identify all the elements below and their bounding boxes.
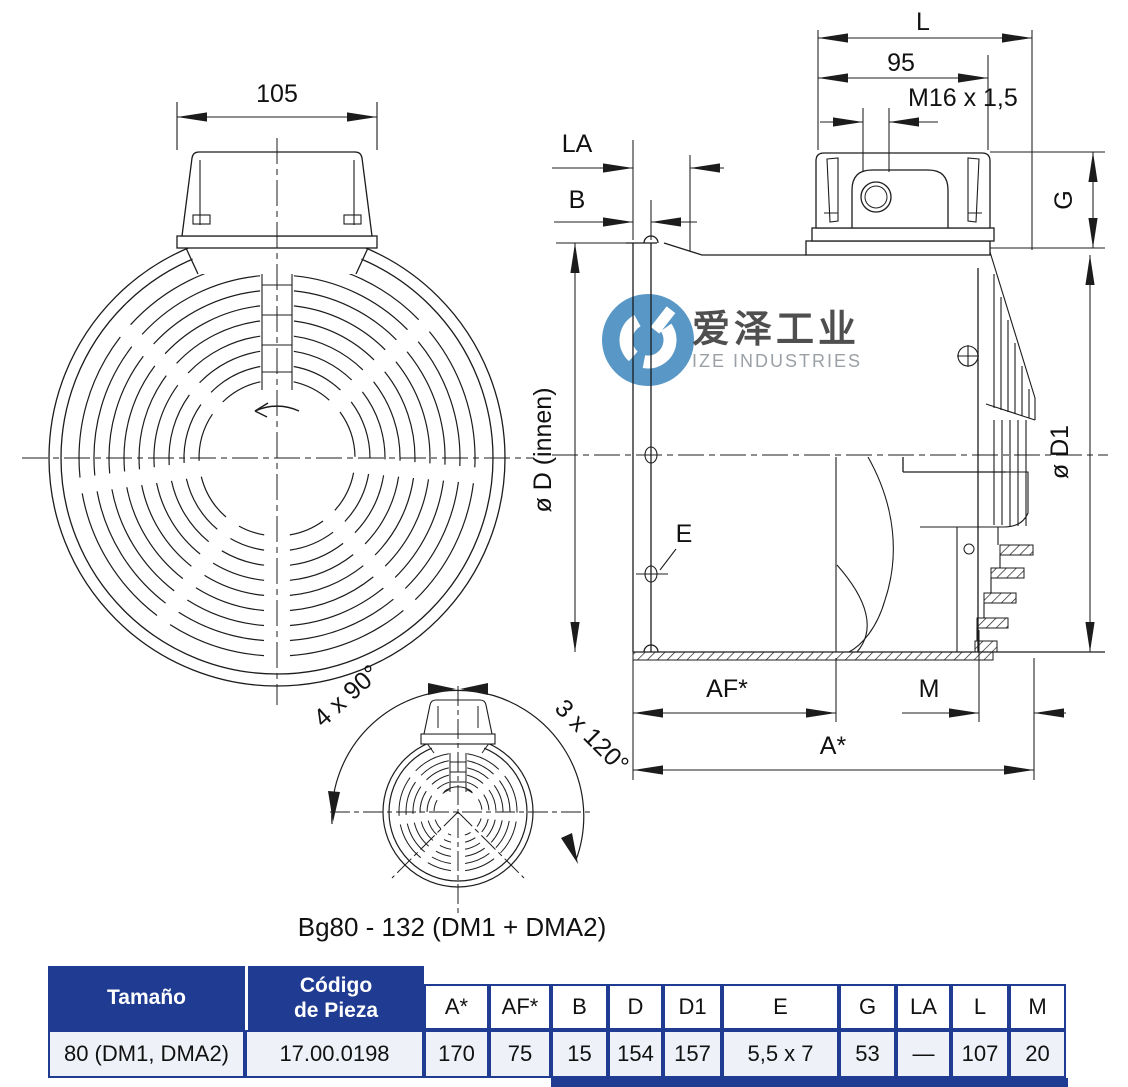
dim-L-label: L xyxy=(916,8,930,36)
col-header-6: G xyxy=(839,984,896,1030)
ize-logo-icon xyxy=(602,294,694,386)
watermark-cn-text: 爱泽工业 xyxy=(692,309,860,351)
value-cell-0: 170 xyxy=(424,1030,489,1078)
value-size: 80 (DM1, DMA2) xyxy=(48,1030,245,1078)
dim-B-label: B xyxy=(569,186,586,214)
col-header-1: AF* xyxy=(489,984,551,1030)
col-header-0: A* xyxy=(424,984,489,1030)
value-cell-7: — xyxy=(896,1030,951,1078)
table-header-row: Tamaño Código de Pieza A*AF*BDD1EGLALM xyxy=(48,966,1068,1030)
value-cell-2: 15 xyxy=(551,1030,608,1078)
col-header-5: E xyxy=(722,984,839,1030)
front-view xyxy=(22,138,533,705)
value-cell-5: 5,5 x 7 xyxy=(722,1030,839,1078)
drawing-caption: Bg80 - 132 (DM1 + DMA2) xyxy=(298,912,607,942)
col-header-codigo: Código de Pieza xyxy=(245,966,424,1030)
dim-105-label: 105 xyxy=(256,80,298,108)
table-bottom-strip xyxy=(551,1078,1068,1087)
value-cell-9: 20 xyxy=(1009,1030,1066,1078)
col-header-8: L xyxy=(951,984,1009,1030)
value-code: 17.00.0198 xyxy=(245,1030,424,1078)
side-view xyxy=(552,153,1108,660)
col-header-codigo-line2: de Pieza xyxy=(294,998,378,1023)
value-cell-1: 75 xyxy=(489,1030,551,1078)
dim-E-label: E xyxy=(676,520,693,548)
value-cell-4: 157 xyxy=(663,1030,722,1078)
value-cells: 17075151541575,5 x 753—10720 xyxy=(424,1030,1066,1078)
dim-m16-label: M16 x 1,5 xyxy=(908,84,1018,112)
technical-drawing: 爱泽工业 IZE INDUSTRIES xyxy=(0,0,1128,960)
dim-95-label: 95 xyxy=(887,49,915,77)
dim-AF-label: AF* xyxy=(706,675,748,703)
col-header-7: LA xyxy=(896,984,951,1030)
watermark-en-text: IZE INDUSTRIES xyxy=(692,351,862,371)
dim-M-label: M xyxy=(919,675,940,703)
watermark: 爱泽工业 IZE INDUSTRIES xyxy=(602,294,862,386)
dim-LA-label: LA xyxy=(562,130,593,158)
value-cell-8: 107 xyxy=(951,1030,1009,1078)
dim-A-label: A* xyxy=(820,732,847,760)
dim-header-cells: A*AF*BDD1EGLALM xyxy=(424,966,1066,1030)
col-header-2: B xyxy=(551,984,608,1030)
col-header-tamano: Tamaño xyxy=(48,966,245,1030)
dimension-table: Tamaño Código de Pieza A*AF*BDD1EGLALM 8… xyxy=(48,966,1068,1078)
value-cell-6: 53 xyxy=(839,1030,896,1078)
table-data-row: 80 (DM1, DMA2) 17.00.0198 17075151541575… xyxy=(48,1030,1068,1078)
screw-icon xyxy=(957,345,979,367)
dim-d1-label: ø D1 xyxy=(1046,425,1074,479)
dim-G-label: G xyxy=(1050,190,1078,209)
col-header-3: D xyxy=(608,984,663,1030)
bottom-view xyxy=(330,686,590,915)
datasheet-page: 爱泽工业 IZE INDUSTRIES xyxy=(0,0,1128,1087)
col-header-9: M xyxy=(1009,984,1066,1030)
col-header-codigo-line1: Código xyxy=(300,973,372,998)
dim-d-innen-label: ø D (innen) xyxy=(529,387,557,512)
value-cell-3: 154 xyxy=(608,1030,663,1078)
col-header-4: D1 xyxy=(663,984,722,1030)
angle-3x120-label: 3 x 120° xyxy=(549,694,634,779)
angle-4x90-label: 4 x 90° xyxy=(308,660,385,733)
